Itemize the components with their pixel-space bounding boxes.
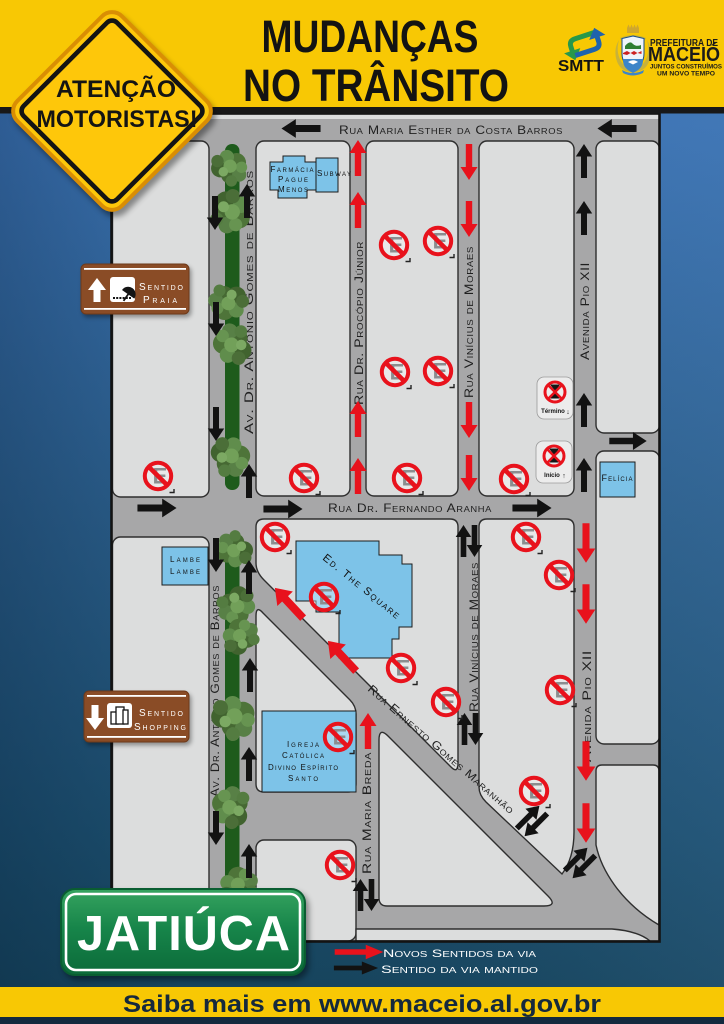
svg-text:Término: Término	[541, 409, 565, 415]
svg-text:Felícia: Felícia	[602, 473, 633, 483]
svg-text:Praia: Praia	[143, 295, 177, 306]
svg-text:ATENÇÃO: ATENÇÃO	[56, 75, 176, 103]
svg-text:Novos Sentidos da via: Novos Sentidos da via	[383, 948, 537, 960]
svg-text:Rua Maria Breda: Rua Maria Breda	[362, 752, 374, 874]
svg-text:Rua Vinícius de Moraes: Rua Vinícius de Moraes	[464, 246, 476, 398]
svg-text:Rua Dr. Fernando Aranha: Rua Dr. Fernando Aranha	[328, 503, 492, 515]
svg-text:↑: ↑	[562, 473, 566, 480]
svg-text:NO TRÂNSITO: NO TRÂNSITO	[243, 60, 509, 111]
svg-text:Farmácia: Farmácia	[271, 165, 314, 174]
svg-text:↓: ↓	[566, 409, 570, 416]
svg-text:JUNTOS CONSTRUÍMOS: JUNTOS CONSTRUÍMOS	[650, 63, 722, 71]
svg-text:Rua Vinícius de Moraes: Rua Vinícius de Moraes	[469, 562, 481, 712]
svg-text:JATIÚCA: JATIÚCA	[77, 906, 291, 961]
svg-text:Avenida Pio XII: Avenida Pio XII	[580, 262, 592, 360]
svg-text:Saiba mais em www.maceio.al.go: Saiba mais em www.maceio.al.gov.br	[123, 991, 601, 1018]
svg-text:Divino Espírito: Divino Espírito	[268, 763, 338, 772]
svg-text:Rua Dr. Procópio Júnior: Rua Dr. Procópio Júnior	[354, 241, 366, 405]
svg-text:UM NOVO TEMPO: UM NOVO TEMPO	[657, 72, 715, 78]
svg-text:Menos: Menos	[278, 185, 308, 194]
svg-text:Shopping: Shopping	[134, 722, 186, 733]
svg-text:MUDANÇAS: MUDANÇAS	[262, 11, 479, 62]
svg-text:SMTT: SMTT	[558, 58, 604, 75]
svg-text:Santo: Santo	[288, 774, 318, 783]
svg-text:Início: Início	[544, 473, 560, 479]
svg-text:MACEIÓ: MACEIÓ	[648, 42, 720, 66]
svg-text:MOTORISTAS!: MOTORISTAS!	[37, 106, 198, 133]
svg-text:Pague: Pague	[278, 175, 308, 184]
svg-text:Sentido da via mantido: Sentido da via mantido	[381, 964, 538, 976]
svg-text:Rua Maria Esther da Costa Barr: Rua Maria Esther da Costa Barros	[339, 125, 563, 137]
